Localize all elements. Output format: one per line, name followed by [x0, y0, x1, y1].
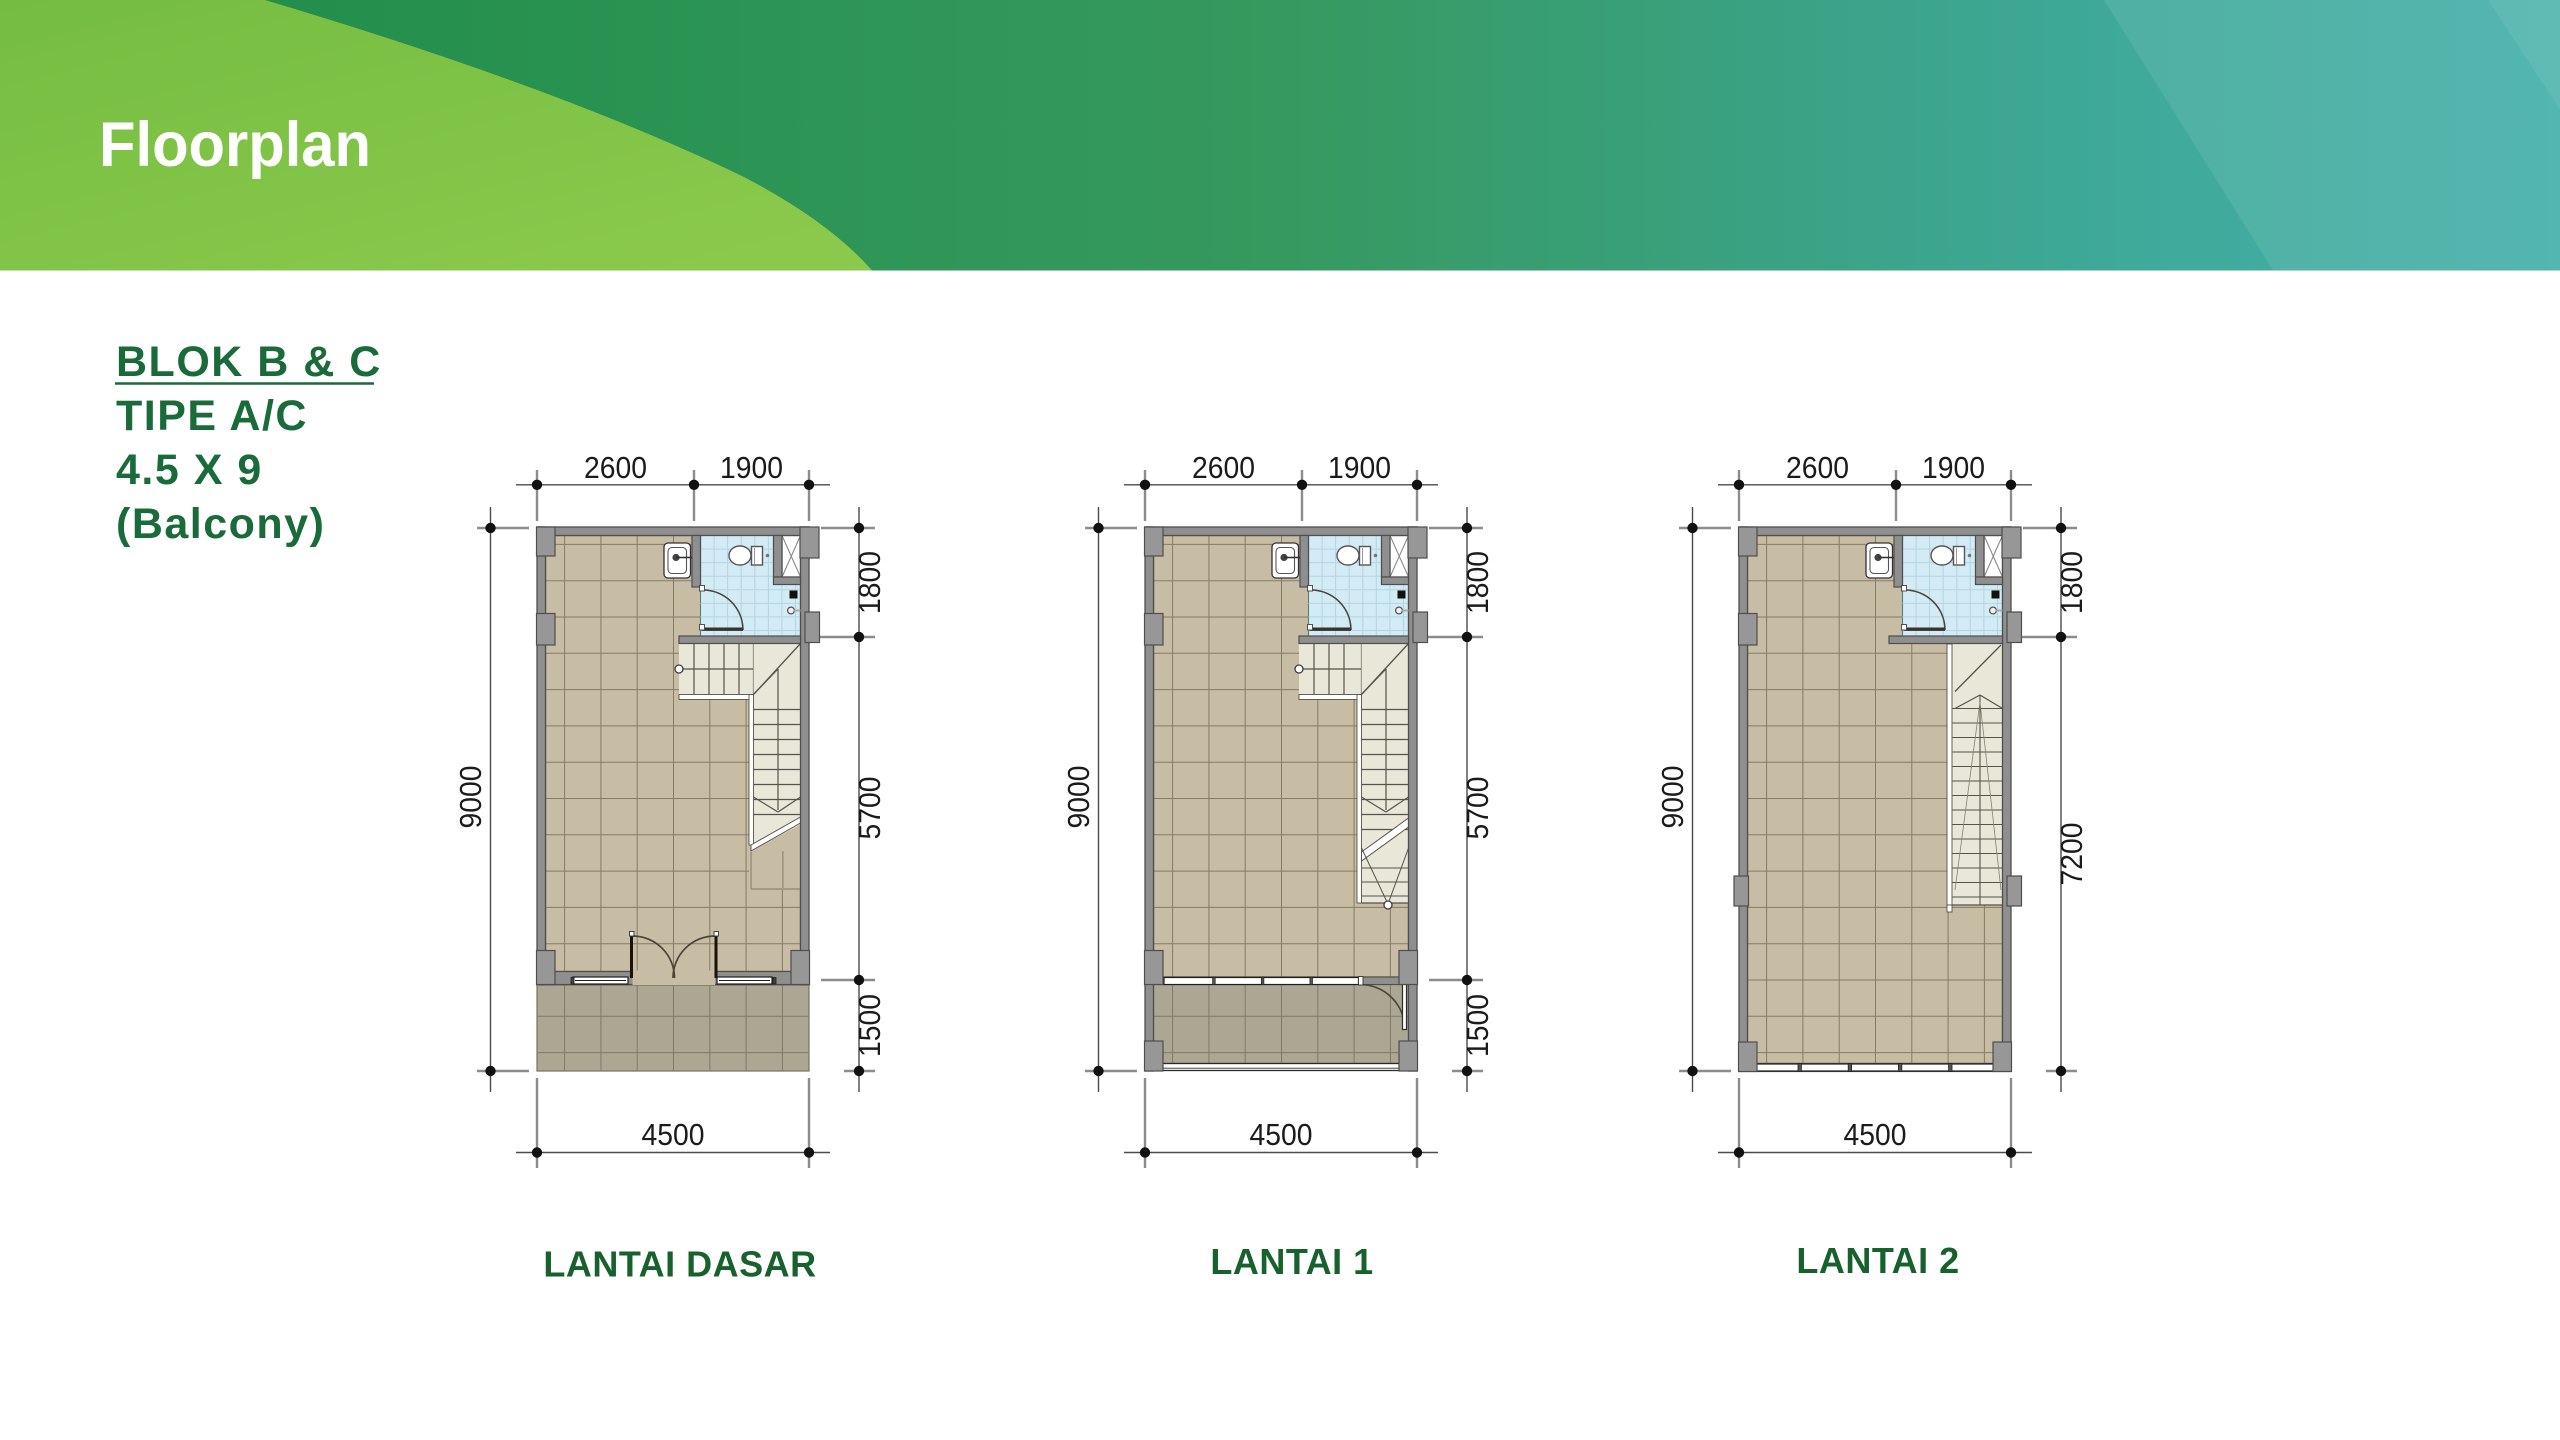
svg-text:5700: 5700 — [852, 777, 887, 840]
svg-text:1800: 1800 — [1460, 551, 1495, 614]
svg-text:LANTAI DASAR: LANTAI DASAR — [543, 1244, 816, 1285]
svg-text:4500: 4500 — [642, 1117, 705, 1152]
svg-text:9000: 9000 — [1655, 766, 1690, 829]
svg-text:2600: 2600 — [584, 450, 647, 485]
svg-text:(Balcony): (Balcony) — [116, 500, 325, 548]
svg-text:4500: 4500 — [1844, 1117, 1907, 1152]
svg-text:4.5 X 9: 4.5 X 9 — [116, 446, 263, 494]
svg-text:TIPE A/C: TIPE A/C — [116, 392, 308, 440]
svg-text:LANTAI 1: LANTAI 1 — [1210, 1241, 1373, 1282]
svg-text:1500: 1500 — [852, 994, 887, 1057]
svg-text:LANTAI 2: LANTAI 2 — [1796, 1240, 1959, 1281]
svg-text:4500: 4500 — [1250, 1117, 1313, 1152]
svg-text:1800: 1800 — [852, 551, 887, 614]
svg-text:2600: 2600 — [1786, 450, 1849, 485]
svg-text:5700: 5700 — [1460, 777, 1495, 840]
svg-text:1900: 1900 — [1328, 450, 1391, 485]
svg-text:7200: 7200 — [2054, 823, 2089, 886]
svg-text:1500: 1500 — [1460, 994, 1495, 1057]
svg-text:2600: 2600 — [1192, 450, 1255, 485]
svg-text:BLOK B & C: BLOK B & C — [116, 338, 382, 386]
svg-text:1900: 1900 — [1922, 450, 1985, 485]
svg-text:9000: 9000 — [1061, 766, 1096, 829]
svg-text:Floorplan: Floorplan — [99, 110, 371, 180]
svg-text:1900: 1900 — [720, 450, 783, 485]
svg-text:1800: 1800 — [2054, 551, 2089, 614]
svg-text:9000: 9000 — [453, 766, 488, 829]
